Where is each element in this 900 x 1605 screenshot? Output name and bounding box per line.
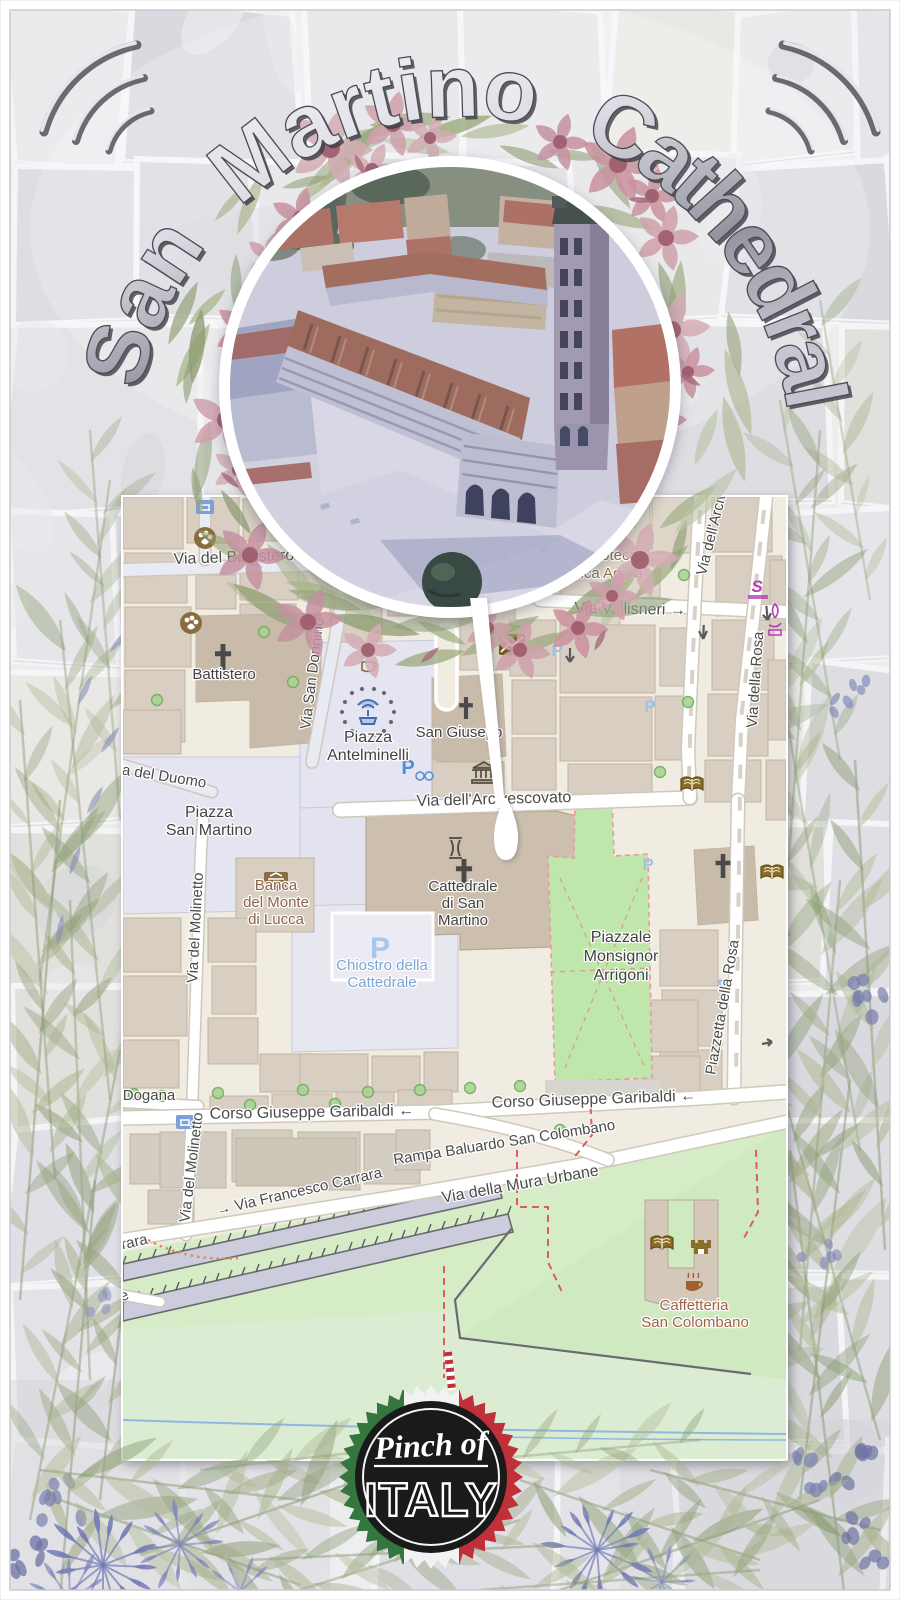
svg-text:Banca: Banca <box>255 877 298 894</box>
svg-text:Chiostro della: Chiostro della <box>336 957 428 974</box>
svg-text:Corso Giuseppe Garibaldi ←: Corso Giuseppe Garibaldi ← <box>210 1102 415 1123</box>
svg-text:P: P <box>644 697 655 716</box>
svg-text:Pinch of: Pinch of <box>373 1424 492 1466</box>
svg-text:Piazzale: Piazzale <box>591 929 652 946</box>
svg-text:Martino: Martino <box>438 912 488 929</box>
svg-text:di San: di San <box>442 895 485 912</box>
svg-text:Caffetteria: Caffetteria <box>660 1297 730 1314</box>
svg-text:San Colombano: San Colombano <box>641 1314 749 1331</box>
svg-text:Cattedrale: Cattedrale <box>428 878 497 895</box>
svg-text:Monsignor: Monsignor <box>584 948 659 965</box>
svg-text:Arrigoni: Arrigoni <box>593 967 648 984</box>
svg-text:di Lucca: di Lucca <box>248 911 305 928</box>
svg-text:ITALY: ITALY <box>365 1473 498 1526</box>
svg-text:Cattedrale: Cattedrale <box>347 974 416 991</box>
svg-text:Piazza: Piazza <box>344 729 392 746</box>
svg-text:P: P <box>642 855 653 874</box>
svg-text:Piazza: Piazza <box>185 804 233 821</box>
svg-text:del Monte: del Monte <box>243 894 309 911</box>
svg-text:Battistero: Battistero <box>192 666 255 683</box>
svg-text:Antelminelli: Antelminelli <box>327 747 409 764</box>
svg-text:Dogana: Dogana <box>123 1087 176 1104</box>
svg-text:S: S <box>751 577 763 596</box>
svg-text:San Martino: San Martino <box>166 822 252 839</box>
